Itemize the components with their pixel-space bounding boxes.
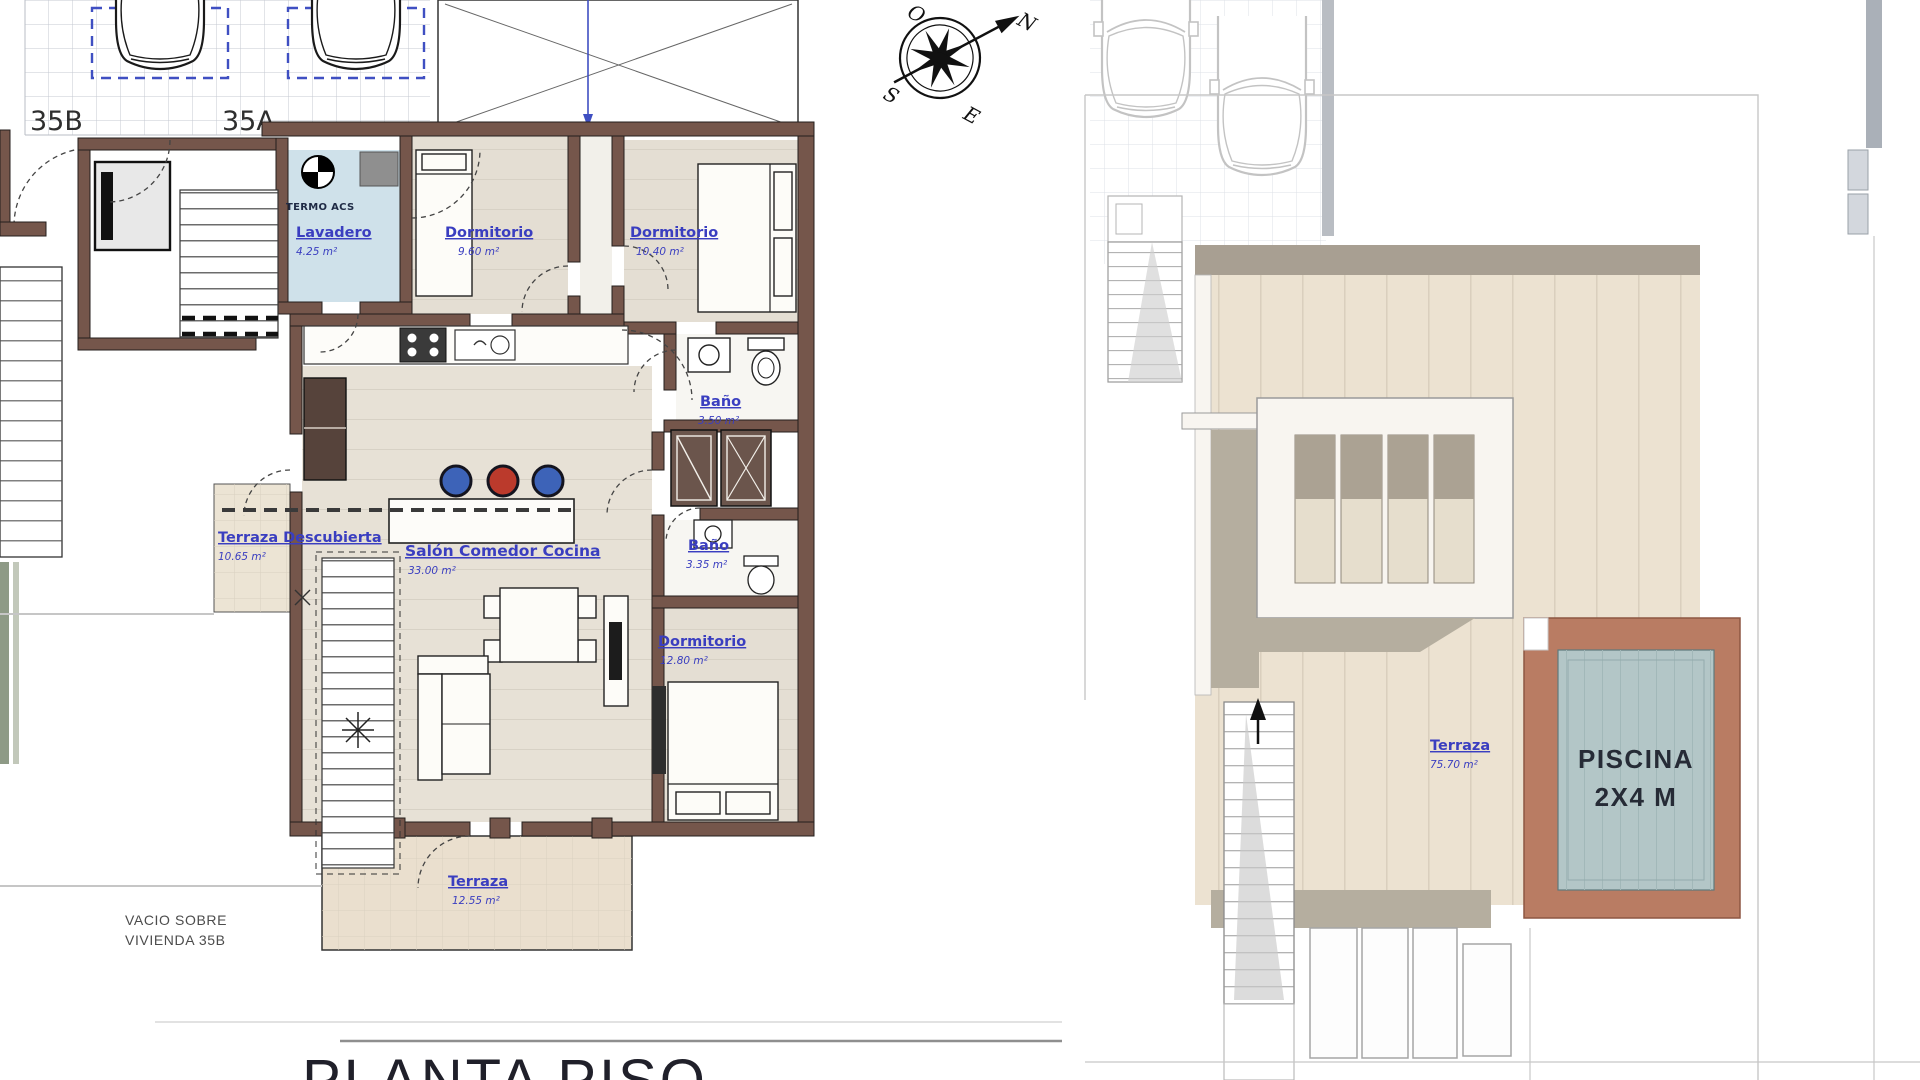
dorm2-label: Dormitorio (630, 225, 718, 241)
dorm2-area: 10.40 m² (636, 246, 685, 258)
fridge-icon (304, 378, 346, 480)
dorm1-label: Dormitorio (445, 225, 533, 241)
stool-icon (533, 466, 563, 496)
plan-title: PLANTA PISO (155, 1022, 1062, 1080)
exterior-stairs (0, 267, 62, 557)
lavadero-label: Lavadero (296, 225, 372, 241)
right-plan: PISCINA 2X4 M Terraza 75.70 m² (1085, 0, 1920, 1080)
stool-icon (488, 466, 518, 496)
void-note-line1: VACIO SOBRE (125, 912, 227, 928)
piscina-label-line2: 2X4 M (1595, 782, 1678, 812)
wardrobe-icon (721, 430, 771, 506)
compass-rose: N O S E (875, 0, 1041, 129)
bano2-label: Baño (688, 538, 729, 554)
piscina-label-line1: PISCINA (1578, 744, 1694, 774)
tv-unit-icon (604, 596, 628, 706)
compass-n: N (1013, 7, 1042, 38)
roof-stairwell (1108, 196, 1182, 382)
page-title: PLANTA PISO (302, 1048, 708, 1080)
bed-icon (668, 682, 778, 820)
faint-edges (0, 614, 322, 886)
void-room (438, 0, 798, 130)
kitchen-sink-icon (455, 330, 515, 360)
floorplan-svg: 35B 35A (0, 0, 1920, 1080)
salon-area: 33.00 m² (408, 565, 457, 577)
parapet-wall (1195, 275, 1211, 695)
unit-label-35b: 35B (30, 106, 83, 137)
boundary-wall (1322, 0, 1334, 236)
terraza-label: Terraza (448, 874, 508, 890)
stove-icon (400, 328, 446, 362)
bano1-area: 3.50 m² (698, 415, 740, 427)
termo-acs-label: TERMO ACS (286, 202, 354, 213)
bed-icon (416, 150, 472, 296)
roof-terraza-label: Terraza (1430, 738, 1490, 754)
planter-strips (0, 562, 19, 764)
roof-garage-panels (1270, 905, 1530, 1080)
bano2-area: 3.35 m² (686, 559, 728, 571)
dorm3-label: Dormitorio (658, 634, 746, 650)
pillar (592, 818, 612, 838)
pillar (490, 818, 510, 838)
faint-car-icon (1094, 0, 1198, 117)
compass-o: O (904, 0, 930, 28)
terraza-area: 12.55 m² (452, 895, 501, 907)
salon-label: Salón Comedor Cocina (405, 542, 601, 560)
left-plan: 35B 35A (0, 0, 814, 950)
hall-floor (580, 136, 612, 318)
central-stairs (316, 552, 400, 874)
car-icon (108, 0, 212, 69)
void-note-line2: VIVIENDA 35B (125, 932, 226, 948)
floorplan-canvas: 35B 35A (0, 0, 1920, 1080)
terraza-descubierta-area: 10.65 m² (218, 551, 267, 563)
wardrobe-icon (652, 686, 666, 774)
island-counter (389, 499, 574, 543)
roof-terraza-area: 75.70 m² (1430, 759, 1479, 771)
dorm1-area: 9.60 m² (458, 246, 500, 258)
roof-edge-shadow (1195, 245, 1700, 275)
car-icon (304, 0, 408, 69)
terraza-descubierta-label: Terraza Descubierta (218, 530, 382, 546)
bathroom-sink-icon (688, 338, 730, 372)
entrance-stairs (180, 190, 278, 338)
shower-icon (671, 430, 717, 506)
roof-stairs (1224, 698, 1294, 1080)
stool-icon (441, 466, 471, 496)
dorm3-area: 12.80 m² (660, 655, 709, 667)
compass-s: S (880, 81, 903, 109)
bano1-label: Baño (700, 394, 741, 410)
compass-e: E (959, 101, 984, 130)
lavadero-area: 4.25 m² (296, 246, 338, 258)
sofa-icon (418, 656, 490, 780)
pool-deck: PISCINA 2X4 M (1524, 618, 1740, 918)
